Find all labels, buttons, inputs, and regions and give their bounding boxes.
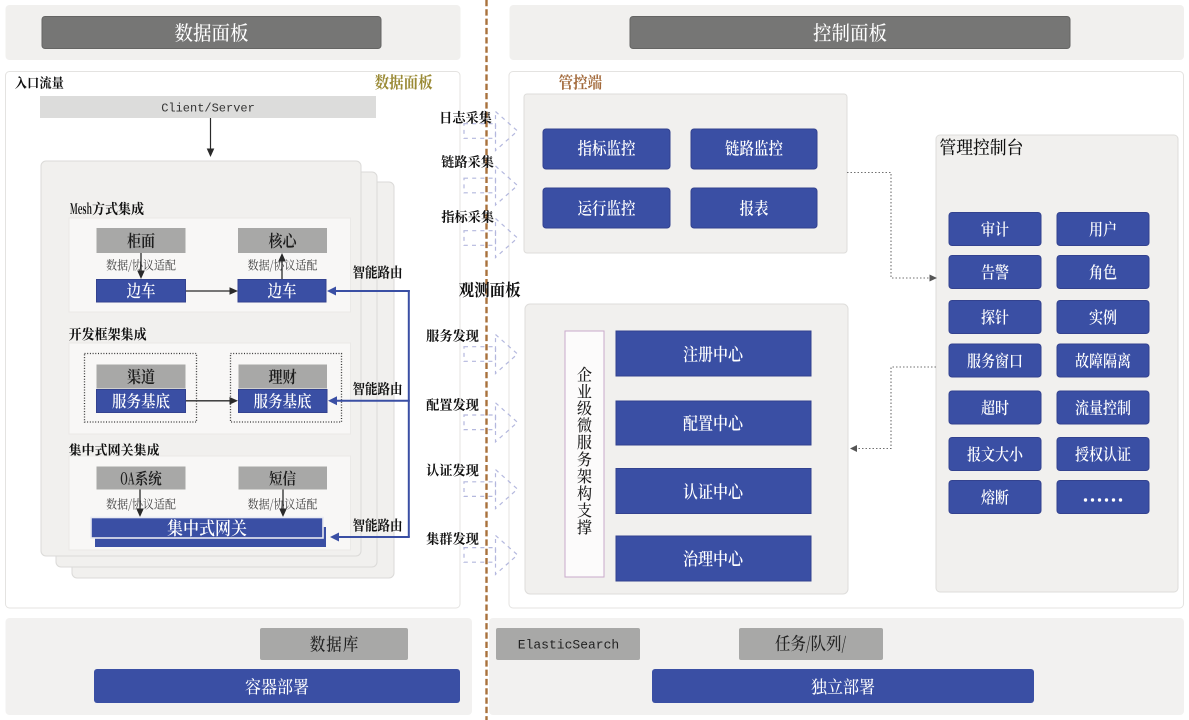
svg-text:Client/Server: Client/Server: [161, 102, 255, 116]
svg-text:ElasticSearch: ElasticSearch: [518, 638, 619, 653]
